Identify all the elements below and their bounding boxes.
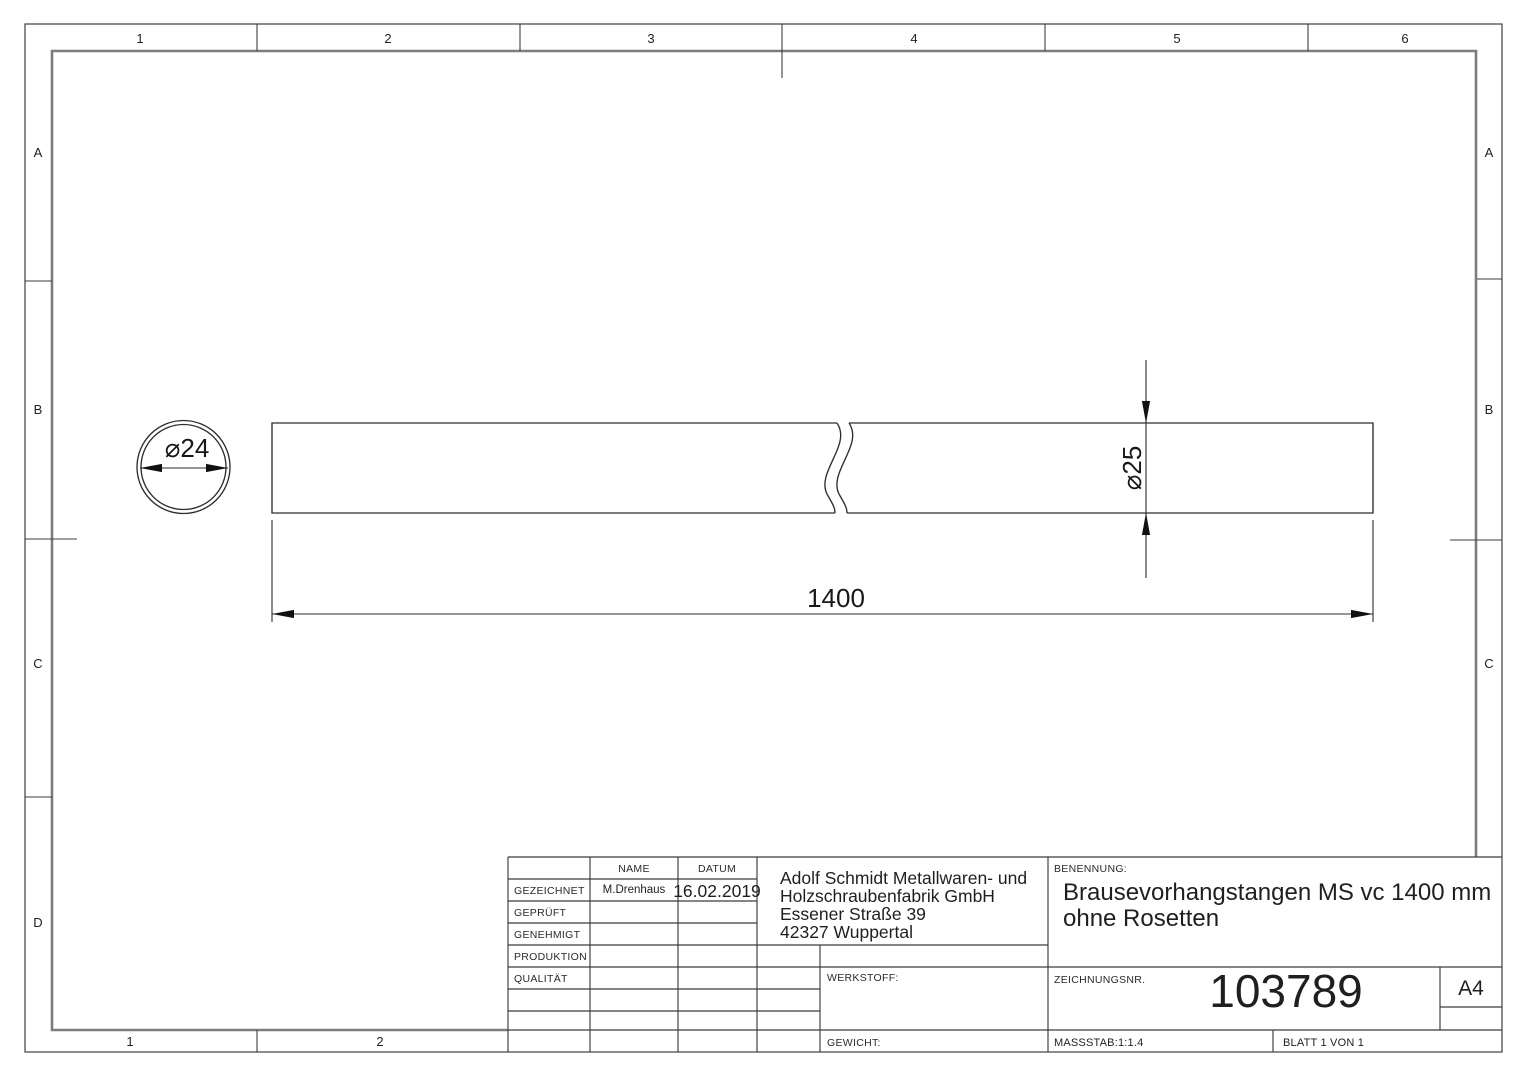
arrowhead-right [206, 464, 228, 472]
row-label-geprueft: GEPRÜFT [514, 907, 567, 919]
gezeichnet-datum: 16.02.2019 [673, 881, 761, 901]
dim-rod-length: 1400 [807, 583, 865, 613]
column-header-datum: DATUM [698, 863, 736, 875]
zone-row-label-right: C [1484, 656, 1493, 671]
row-label-produktion: PRODUKTION [514, 951, 587, 963]
row-label-gezeichnet: GEZEICHNET [514, 885, 585, 897]
zone-row-label-left: C [33, 656, 42, 671]
part-title-line: ohne Rosetten [1063, 905, 1219, 932]
zone-column-label: 6 [1401, 31, 1408, 46]
werkstoff-label: WERKSTOFF: [827, 972, 899, 984]
rod-right-segment [837, 423, 1373, 513]
rod-left-segment [272, 423, 841, 513]
dim-rod-diameter: ⌀25 [1117, 446, 1147, 491]
footer-section: MASSSTAB:1:1.4 BLATT 1 VON 1 [1054, 1037, 1364, 1049]
zone-column-label: 2 [384, 31, 391, 46]
zone-row-label-right: A [1485, 145, 1494, 160]
zone-column-label-bottom: 1 [126, 1034, 133, 1049]
dimension-rod-diameter: ⌀25 [1117, 360, 1150, 578]
scale-label: MASSSTAB:1:1.4 [1054, 1037, 1143, 1049]
zone-row-label-left: D [33, 915, 42, 930]
drawing-number: 103789 [1209, 965, 1363, 1017]
gewicht-label: GEWICHT: [827, 1037, 881, 1049]
company-address: Adolf Schmidt Metallwaren- und Holzschra… [780, 868, 1027, 942]
dim-end-view-diameter: ⌀24 [165, 433, 210, 463]
zone-row-label-left: B [34, 402, 43, 417]
technical-drawing-sheet: 1 2 3 4 5 6 1 2 A B C D A B C ⌀24 ⌀25 [0, 0, 1528, 1080]
arrowhead-up [1142, 513, 1150, 535]
arrowhead-right [1351, 610, 1373, 618]
row-label-genehmigt: GENEHMIGT [514, 929, 581, 941]
drawing-canvas: 1 2 3 4 5 6 1 2 A B C D A B C ⌀24 ⌀25 [0, 0, 1528, 1080]
zone-column-label: 5 [1173, 31, 1180, 46]
drawing-number-section: ZEICHNUNGSNR. 103789 A4 [1054, 965, 1484, 1017]
zone-column-label: 1 [136, 31, 143, 46]
part-title-section: BENENNUNG: Brausevorhangstangen MS vc 14… [1054, 863, 1491, 932]
part-title-line: Brausevorhangstangen MS vc 1400 mm [1063, 879, 1491, 906]
material-weight-section: WERKSTOFF: GEWICHT: [827, 972, 899, 1049]
zeichnungsnr-label: ZEICHNUNGSNR. [1054, 974, 1145, 986]
dimension-rod-length: 1400 [272, 520, 1373, 622]
zone-row-label-right: B [1485, 402, 1494, 417]
rod-front-view [272, 423, 1373, 513]
arrowhead-down [1142, 401, 1150, 423]
paper-format: A4 [1458, 977, 1484, 1000]
column-header-name: NAME [618, 863, 650, 875]
company-line: Essener Straße 39 [780, 904, 926, 924]
zone-row-label-left: A [34, 145, 43, 160]
gezeichnet-name: M.Drenhaus [603, 884, 666, 896]
zone-column-label: 4 [910, 31, 917, 46]
company-line: Holzschraubenfabrik GmbH [780, 886, 995, 906]
arrowhead-left [140, 464, 162, 472]
sheet-count-label: BLATT 1 VON 1 [1283, 1037, 1364, 1049]
company-line: Adolf Schmidt Metallwaren- und [780, 868, 1027, 888]
benennung-label: BENENNUNG: [1054, 863, 1127, 875]
end-view: ⌀24 [137, 421, 230, 514]
row-label-qualitaet: QUALITÄT [514, 973, 568, 985]
arrowhead-left [272, 610, 294, 618]
company-line: 42327 Wuppertal [780, 922, 913, 942]
zone-column-label: 3 [647, 31, 654, 46]
zone-column-label-bottom: 2 [376, 1034, 383, 1049]
